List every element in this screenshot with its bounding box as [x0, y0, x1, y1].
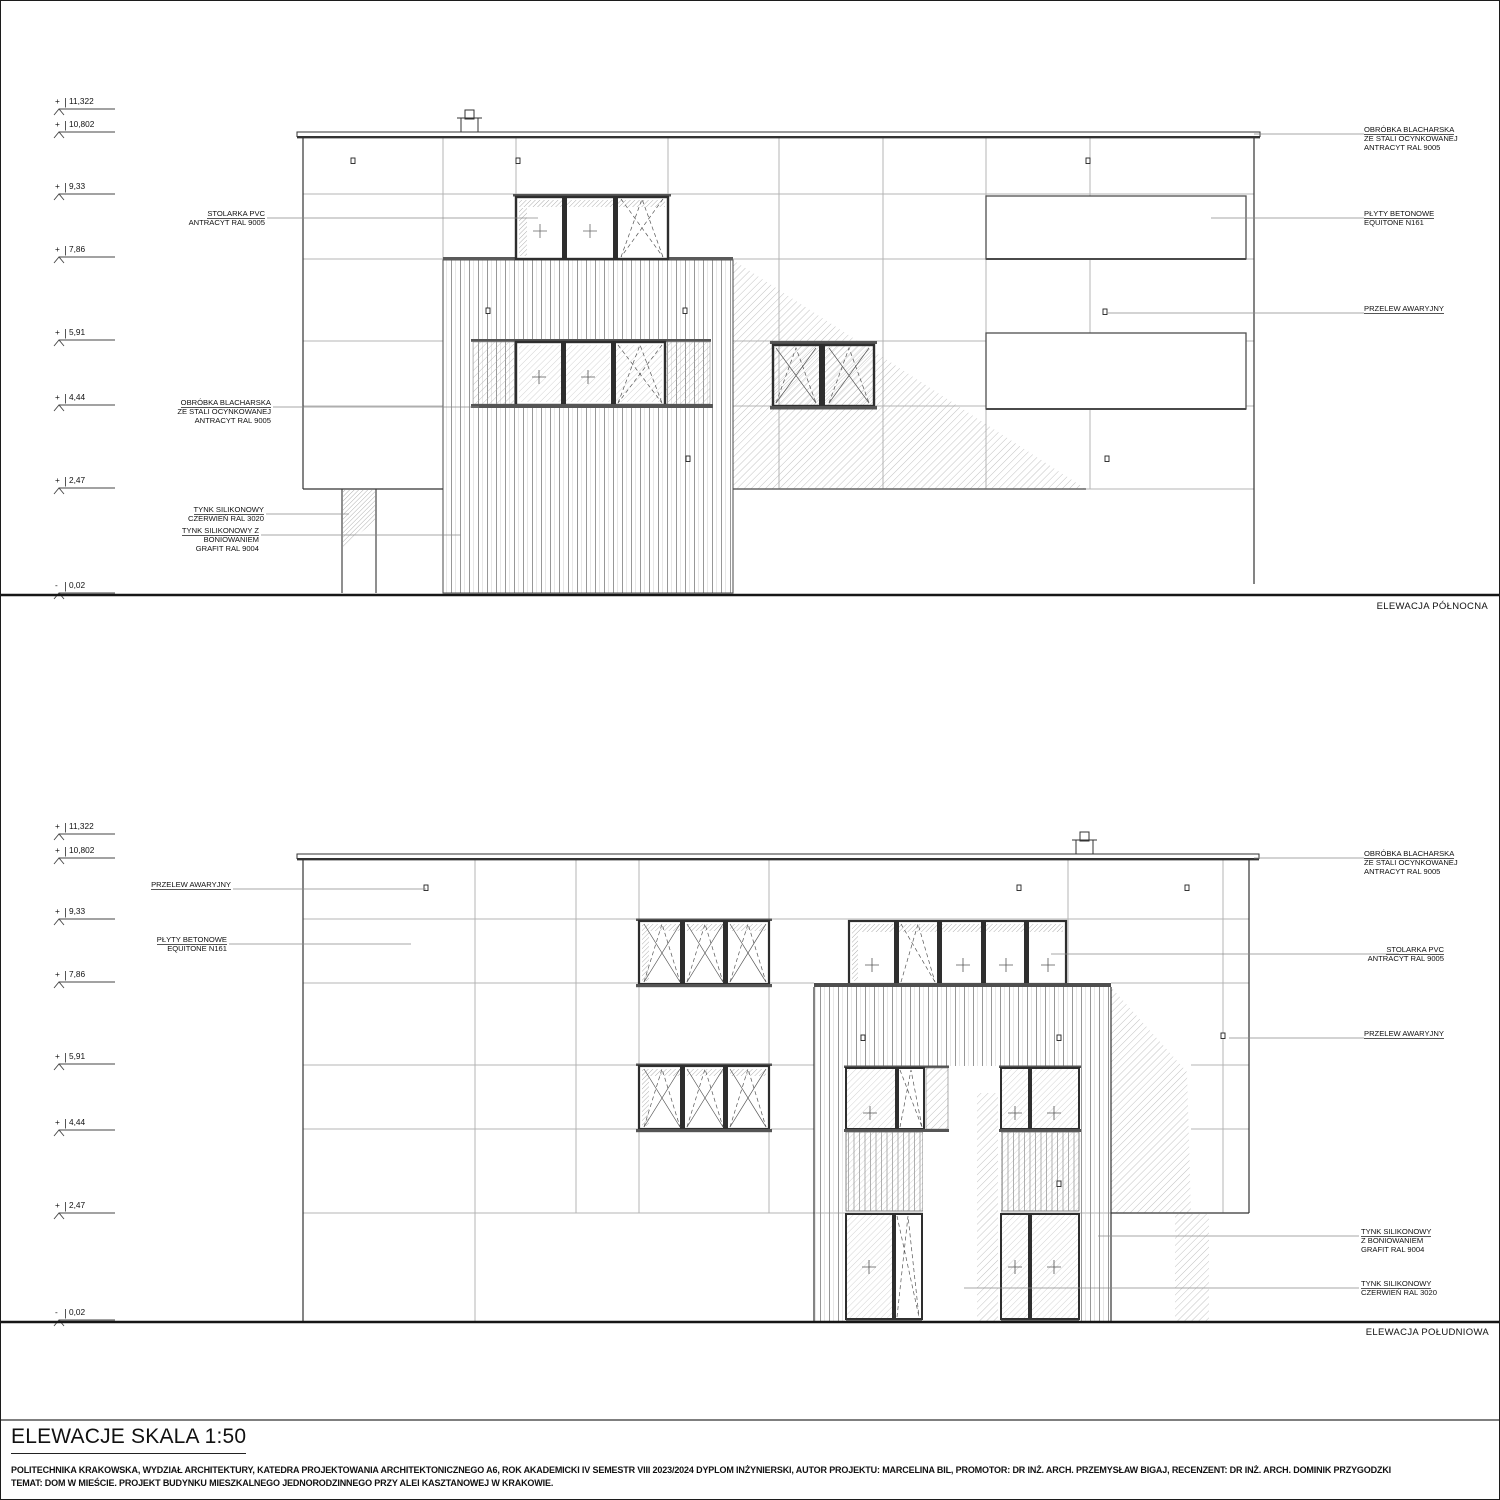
north-equitone-panels	[986, 196, 1246, 409]
south-left-windows-upper	[636, 919, 772, 988]
annotation-obrobka-blacharska: OBRÓBKA BLACHARSKA ZE STALI OCYNKOWANEJ …	[177, 398, 271, 426]
level-marker: +9,33	[55, 906, 85, 918]
sheet-title: ELEWACJE SKALA 1:50	[11, 1425, 246, 1454]
north-upper-windows	[513, 194, 671, 259]
level-marker: +2,47	[55, 475, 85, 487]
level-marker: +4,44	[55, 1117, 85, 1129]
sheet-footer-line1: POLITECHNIKA KRAKOWSKA, WYDZIAŁ ARCHITEK…	[11, 1465, 1391, 1475]
drawing-sheet: +11,322 +10,802 +9,33 +7,86 +5,91 +4,44 …	[0, 0, 1500, 1500]
south-level-datums	[54, 823, 115, 1326]
level-marker: +7,86	[55, 969, 85, 981]
south-five-window-band	[849, 921, 1066, 984]
south-elevation-title: ELEWACJA POŁUDNIOWA	[1366, 1327, 1489, 1338]
level-marker: +4,44	[55, 392, 85, 404]
level-marker: +11,322	[55, 96, 94, 108]
annotation-plyty-betonowe: PŁYTY BETONOWE EQUITONE N161	[1364, 209, 1434, 227]
annotation-stolarka-pvc: STOLARKA PVC ANTRACYT RAL 9005	[189, 209, 265, 227]
north-level-datums	[54, 98, 115, 599]
annotation-tynk-boniowanie: TYNK SILIKONOWY Z BONIOWANIEM GRAFIT RAL…	[182, 526, 259, 554]
annotation-przelew-awaryjny: PRZELEW AWARYJNY	[1364, 304, 1444, 313]
level-marker: +9,33	[55, 181, 85, 193]
level-marker: +5,91	[55, 1051, 85, 1063]
north-mid-windows	[471, 339, 713, 408]
level-marker: +11,322	[55, 821, 94, 833]
annotation-tynk-czerwien: TYNK SILIKONOWY CZERWIEŃ RAL 3020	[1361, 1279, 1437, 1297]
sheet-footer-line2: TEMAT: DOM W MIEŚCIE. PROJEKT BUDYNKU MI…	[11, 1478, 553, 1488]
level-marker: +2,47	[55, 1200, 85, 1212]
level-marker: -0,02	[55, 580, 85, 592]
annotation-tynk-czerwien: TYNK SILIKONOWY CZERWIEŃ RAL 3020	[188, 505, 264, 523]
north-right-window-pair	[770, 341, 877, 410]
annotation-obrobka-blacharska: OBRÓBKA BLACHARSKA ZE STALI OCYNKOWANEJ …	[1364, 125, 1458, 153]
south-entry-tower	[814, 983, 1111, 1321]
level-marker: +10,802	[55, 845, 94, 857]
level-marker: +10,802	[55, 119, 94, 131]
level-marker: +5,91	[55, 327, 85, 339]
annotation-tynk-boniowanie: TYNK SILIKONOWY Z BONIOWANIEM GRAFIT RAL…	[1361, 1227, 1431, 1255]
annotation-stolarka-pvc: STOLARKA PVC ANTRACYT RAL 9005	[1368, 945, 1444, 963]
north-timber-cladding	[443, 257, 733, 593]
south-elevation-drawing	[1, 823, 1500, 1326]
annotation-plyty-betonowe: PŁYTY BETONOWE EQUITONE N161	[157, 935, 227, 953]
annotation-przelew-awaryjny: PRZELEW AWARYJNY	[1364, 1029, 1444, 1038]
annotation-przelew-awaryjny: PRZELEW AWARYJNY	[151, 880, 231, 889]
level-marker: +7,86	[55, 244, 85, 256]
north-base-hatch	[343, 490, 375, 547]
north-elevation-drawing	[1, 98, 1500, 599]
south-shadow	[1111, 987, 1191, 1213]
south-left-windows-lower	[636, 1064, 772, 1133]
annotation-obrobka-blacharska: OBRÓBKA BLACHARSKA ZE STALI OCYNKOWANEJ …	[1364, 849, 1458, 877]
south-shadow-column	[1175, 1214, 1209, 1321]
north-elevation-title: ELEWACJA PÓŁNOCNA	[1377, 601, 1488, 612]
level-marker: -0,02	[55, 1307, 85, 1319]
